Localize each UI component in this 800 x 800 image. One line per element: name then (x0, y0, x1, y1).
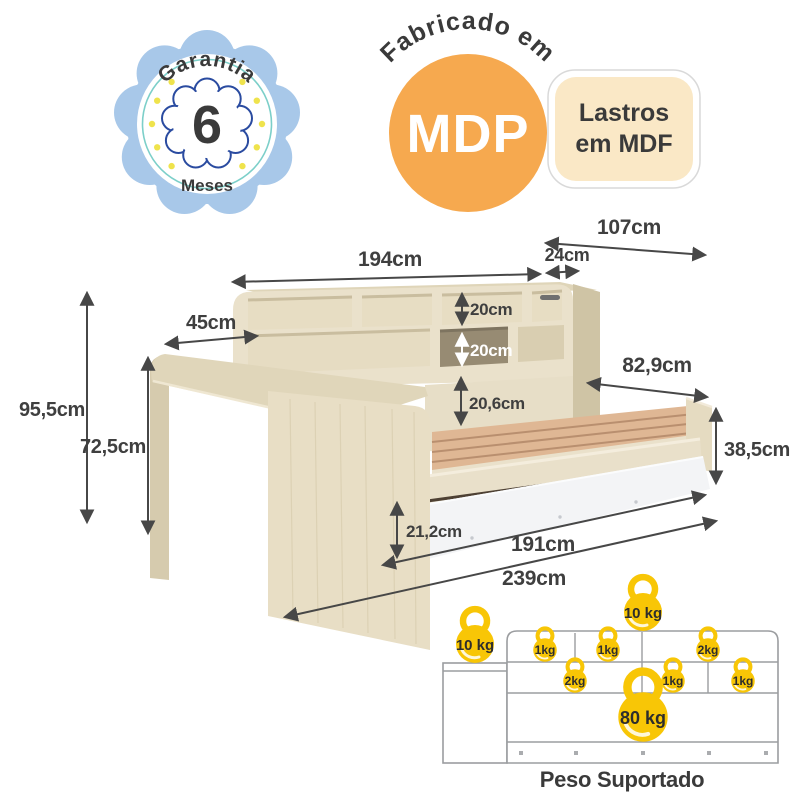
niche-handle (540, 295, 560, 300)
base-badge: Lastros em MDF (548, 70, 700, 188)
svg-text:191cm: 191cm (511, 533, 575, 556)
svg-text:2kg: 2kg (565, 674, 586, 688)
diagram-desk-outline (443, 663, 507, 763)
material-badge: Fabricado em MDP (375, 7, 561, 212)
dim-shelf-length: 194cm (233, 248, 540, 282)
svg-text:194cm: 194cm (358, 248, 422, 271)
svg-text:1kg: 1kg (535, 643, 556, 657)
svg-text:20cm: 20cm (470, 300, 512, 319)
base-badge-line1: Lastros (579, 99, 669, 127)
kettlebell-desk: 10 kg (456, 609, 494, 663)
weight-caption: Peso Suportado (540, 767, 705, 792)
kettlebell-shelf-top: 10 kg (624, 577, 662, 631)
bookshelf-side-panel (573, 284, 600, 428)
svg-text:45cm: 45cm (186, 312, 236, 334)
svg-text:10 kg: 10 kg (624, 605, 662, 622)
product-infographic: Garantia 6 Meses Fabricado em MDP Lastro… (0, 0, 800, 800)
dim-bed-side-height: 38,5cm (716, 409, 790, 483)
svg-text:20,6cm: 20,6cm (469, 394, 525, 413)
svg-text:1kg: 1kg (663, 674, 684, 688)
svg-text:2kg: 2kg (698, 643, 719, 657)
svg-text:80 kg: 80 kg (620, 708, 666, 728)
svg-text:38,5cm: 38,5cm (724, 439, 790, 461)
dim-bed-width: 82,9cm (588, 354, 707, 397)
dim-total-height: 95,5cm (19, 293, 87, 522)
dim-shelf-depth: 24cm (545, 245, 590, 273)
warranty-badge: Garantia 6 Meses (114, 30, 300, 214)
svg-text:1kg: 1kg (733, 674, 754, 688)
svg-text:107cm: 107cm (597, 216, 661, 239)
svg-text:1kg: 1kg (598, 643, 619, 657)
svg-text:82,9cm: 82,9cm (622, 354, 691, 377)
desk-front-panel (268, 391, 430, 650)
base-badge-inner (555, 77, 693, 181)
svg-text:21,2cm: 21,2cm (406, 522, 462, 541)
svg-text:72,5cm: 72,5cm (80, 436, 146, 458)
material-label: MDP (407, 104, 530, 164)
svg-text:24cm: 24cm (545, 245, 590, 265)
desk (150, 354, 430, 650)
dim-desk-height: 72,5cm (80, 358, 148, 533)
warranty-number: 6 (192, 95, 222, 155)
svg-text:95,5cm: 95,5cm (19, 399, 85, 421)
desk-left-panel (150, 355, 180, 580)
svg-text:239cm: 239cm (502, 567, 566, 590)
svg-text:10 kg: 10 kg (456, 637, 494, 654)
warranty-unit: Meses (181, 176, 233, 195)
weight-capacity-diagram: 10 kg 10 kg 80 kg 1kg 1kg 2kg 2kg 1kg (443, 577, 778, 792)
svg-text:20cm: 20cm (470, 341, 512, 360)
base-badge-line2: em MDF (575, 130, 672, 158)
